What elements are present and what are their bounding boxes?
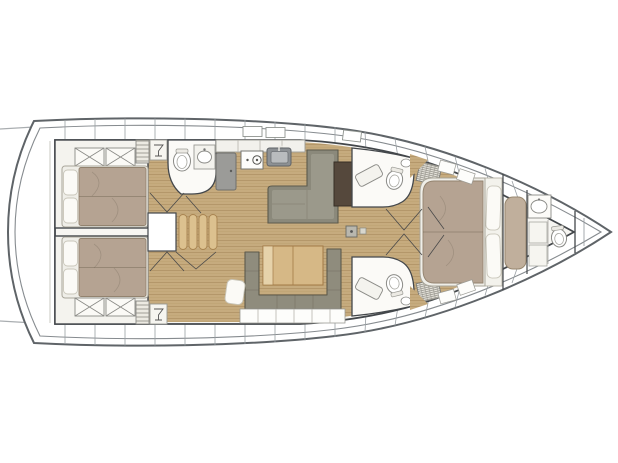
double-berth <box>62 166 148 227</box>
washbasin <box>528 195 551 218</box>
deck-plan-svg <box>0 0 618 463</box>
deck-hatch <box>342 130 361 142</box>
hanging-locker <box>150 140 167 160</box>
boat-floor-plan <box>0 0 618 463</box>
bench-seat <box>505 197 526 269</box>
cushion <box>224 279 245 305</box>
stove-two-burner <box>241 151 263 169</box>
day-head <box>168 140 216 194</box>
pillow <box>64 269 78 294</box>
counter <box>216 140 305 152</box>
vanity-locker <box>529 245 547 266</box>
double-berth <box>62 237 148 298</box>
deck-hatch <box>243 127 262 137</box>
pillow <box>64 241 78 266</box>
shelf-unit <box>136 140 149 163</box>
hanging-locker <box>150 304 167 324</box>
deck-hatch <box>266 128 285 138</box>
sink <box>267 147 291 167</box>
swim-platform-line-top <box>0 127 34 129</box>
hull-locker-row <box>240 309 345 323</box>
vanity-locker <box>529 222 547 243</box>
nav-table <box>334 162 352 206</box>
washbasin <box>401 297 411 305</box>
toilet <box>174 149 191 171</box>
washbasin <box>401 159 411 167</box>
pillow <box>64 198 78 223</box>
pillow <box>486 234 502 278</box>
companionway <box>148 213 217 251</box>
washbasin <box>194 145 215 169</box>
settee-seat <box>311 154 334 216</box>
pillow <box>486 186 502 230</box>
refrigerator <box>216 153 236 190</box>
saloon-table <box>263 246 323 285</box>
shelf-unit <box>136 301 149 324</box>
pillow <box>64 170 78 195</box>
landing <box>148 213 176 251</box>
